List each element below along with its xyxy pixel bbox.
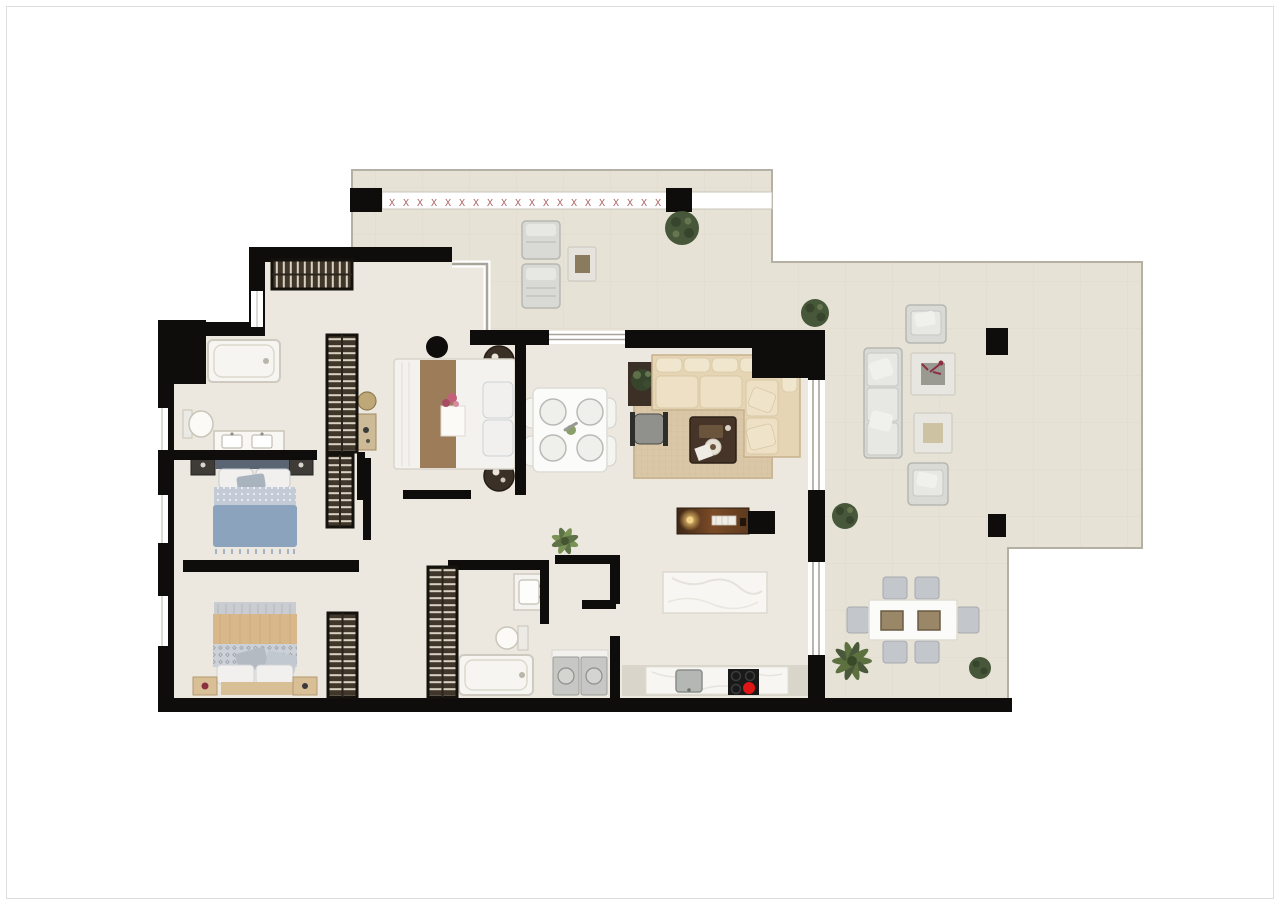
outdoor-side-table — [914, 413, 952, 453]
bath2-toilet — [496, 626, 528, 650]
railing-baluster-glyph: X — [557, 198, 563, 209]
outdoor-sofa — [864, 348, 902, 458]
terrace-railing: XXXXXXXXXXXXXXXXXXXX — [382, 192, 772, 209]
bush — [801, 299, 829, 327]
cooktop-hob — [728, 669, 759, 695]
terrace-pillar — [350, 188, 382, 212]
dining-table-4-seats — [524, 388, 616, 472]
bush — [832, 503, 858, 529]
kitchen-island — [663, 572, 767, 613]
outdoor-dining-chair — [883, 577, 907, 599]
railing-baluster-glyph: X — [599, 198, 605, 209]
outdoor-dining-chair — [883, 641, 907, 663]
wardrobe-bedroom2 — [328, 613, 357, 697]
railing-baluster-glyph: X — [571, 198, 577, 209]
railing-baluster-glyph: X — [459, 198, 465, 209]
outdoor-dining-chair — [915, 577, 939, 599]
railing-baluster-glyph: X — [403, 198, 409, 209]
coffee-table — [690, 417, 736, 463]
bush — [665, 211, 699, 245]
railing-baluster-glyph: X — [585, 198, 591, 209]
railing-baluster-glyph: X — [543, 198, 549, 209]
railing-baluster-glyph: X — [613, 198, 619, 209]
active-burner — [743, 682, 755, 694]
railing-baluster-glyph: X — [417, 198, 423, 209]
railing-baluster-glyph: X — [515, 198, 521, 209]
bathtub — [208, 340, 280, 382]
wardrobe-bedroom1 — [327, 455, 353, 527]
sun-lounger — [522, 264, 560, 308]
round-column — [426, 336, 448, 358]
railing-baluster-glyph: X — [473, 198, 479, 209]
bed-white-runner — [394, 346, 515, 491]
bush — [969, 657, 991, 679]
railing-baluster-glyph: X — [431, 198, 437, 209]
railing-baluster-glyph: X — [501, 198, 507, 209]
railing-baluster-glyph: X — [627, 198, 633, 209]
wardrobe-corridor — [327, 335, 357, 452]
outdoor-coffee-table — [911, 353, 955, 395]
lounger-side-table — [568, 247, 596, 281]
toilet — [183, 410, 213, 438]
bath2-tub — [459, 655, 533, 695]
terrace-pillar — [666, 188, 692, 212]
accent-chair — [630, 412, 668, 446]
railing-baluster-glyph: X — [529, 198, 535, 209]
wardrobe-hall — [272, 260, 352, 289]
double-vanity — [214, 431, 284, 452]
outdoor-armchair — [906, 305, 946, 343]
floor-plan-canvas: XXXXXXXXXXXXXXXXXXXX — [0, 0, 1280, 905]
railing-baluster-glyph: X — [487, 198, 493, 209]
kitchen-counter — [622, 665, 810, 696]
corridor-desk-and-chair — [358, 392, 376, 450]
railing-baluster-glyph: X — [389, 198, 395, 209]
railing-baluster-glyph: X — [445, 198, 451, 209]
terrace-pillar — [986, 328, 1008, 355]
wardrobe-hallway-south — [428, 567, 457, 697]
floor-plan-page: XXXXXXXXXXXXXXXXXXXX — [0, 0, 1280, 905]
outdoor-dining-chair — [847, 607, 869, 633]
outdoor-dining-chair — [957, 607, 979, 633]
sideboard-console — [677, 508, 749, 534]
railing-baluster-glyph: X — [655, 198, 661, 209]
outdoor-armchair — [908, 463, 948, 505]
railing-baluster-glyph: X — [641, 198, 647, 209]
outdoor-dining-chair — [915, 641, 939, 663]
sun-lounger — [522, 221, 560, 259]
terrace-pillar — [988, 514, 1006, 537]
